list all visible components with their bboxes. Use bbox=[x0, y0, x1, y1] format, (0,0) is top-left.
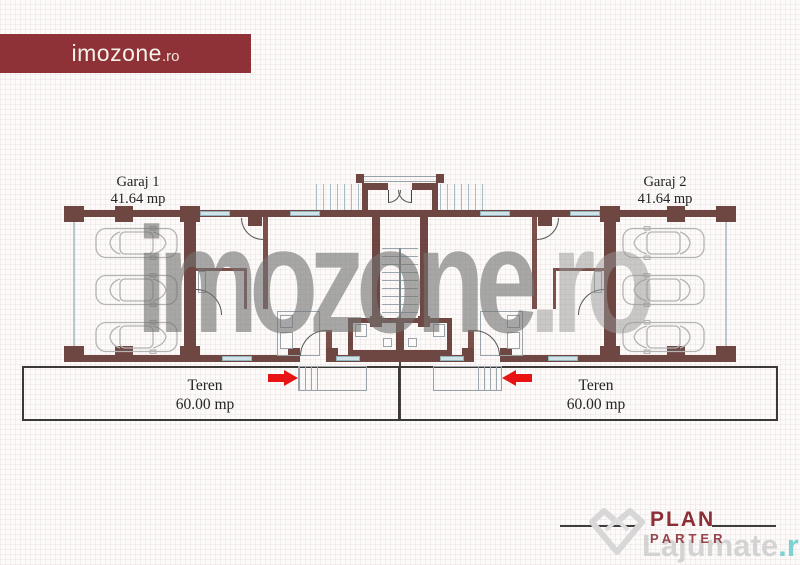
land-right-area: 60.00 mp bbox=[546, 396, 646, 415]
corridor-wall bbox=[420, 217, 428, 322]
window bbox=[570, 211, 600, 216]
car-icon bbox=[621, 320, 705, 354]
brand-tld: .ro bbox=[162, 42, 180, 65]
brand-name: imozone bbox=[72, 40, 162, 67]
door-swing-arc bbox=[196, 289, 222, 315]
window bbox=[480, 211, 510, 216]
door-swing-arc bbox=[241, 218, 263, 240]
sink-fixture bbox=[408, 338, 417, 347]
window bbox=[548, 356, 578, 361]
window bbox=[336, 356, 360, 361]
floorplan-listing-image: imozone.ro Garaj 1 41.64 mp Garaj 2 41.6… bbox=[0, 0, 800, 565]
stove-icon bbox=[507, 315, 520, 328]
porch-wall bbox=[362, 183, 388, 190]
sink-icon bbox=[280, 332, 293, 349]
interior-wall bbox=[263, 217, 268, 309]
wall-pillar bbox=[64, 206, 84, 222]
garage1-label: Garaj 1 41.64 mp bbox=[88, 174, 188, 209]
interior-wall bbox=[553, 268, 556, 309]
exterior-stairs-icon bbox=[440, 184, 484, 210]
car-icon bbox=[95, 226, 179, 260]
garage2-area: 41.64 mp bbox=[615, 191, 715, 208]
window bbox=[440, 356, 464, 361]
land-left-label: Teren 60.00 mp bbox=[155, 377, 255, 414]
land-left-name: Teren bbox=[155, 377, 255, 396]
stair-rail bbox=[399, 248, 401, 326]
wall-pillar bbox=[356, 174, 364, 183]
car-icon bbox=[621, 226, 705, 260]
plan-subtitle: PARTER bbox=[650, 531, 714, 546]
corridor-wall bbox=[372, 217, 380, 322]
footer-rule-right bbox=[712, 525, 776, 527]
door-leaf bbox=[411, 190, 412, 203]
wall-pillar bbox=[600, 346, 620, 362]
corner-watermark-tld: .ro bbox=[778, 528, 800, 563]
wall-segment bbox=[70, 210, 730, 217]
garage-door-line bbox=[725, 222, 727, 346]
entry-steps-icon bbox=[299, 366, 323, 391]
porch-roof-outline bbox=[360, 176, 440, 182]
garage-partition-wall bbox=[604, 210, 616, 362]
land-left-area: 60.00 mp bbox=[155, 396, 255, 415]
garage1-area: 41.64 mp bbox=[88, 191, 188, 208]
land-right-label: Teren 60.00 mp bbox=[546, 377, 646, 414]
toilet-fixture bbox=[433, 324, 445, 337]
exterior-stairs-icon bbox=[316, 184, 360, 210]
porch-wall bbox=[362, 190, 368, 211]
garage1-name: Garaj 1 bbox=[88, 174, 188, 191]
garage-door-line bbox=[73, 222, 75, 346]
stove-icon bbox=[280, 315, 293, 328]
garage2-name: Garaj 2 bbox=[615, 174, 715, 191]
land-right-name: Teren bbox=[546, 377, 646, 396]
window bbox=[290, 211, 320, 216]
door-swing-arc bbox=[578, 289, 604, 315]
garage-partition-wall bbox=[184, 210, 196, 362]
plan-title: PLAN bbox=[650, 508, 714, 532]
party-wall bbox=[396, 318, 404, 362]
sink-icon bbox=[507, 332, 520, 349]
entry-steps-icon bbox=[478, 366, 502, 391]
arrow-right-icon bbox=[268, 370, 298, 386]
car-icon bbox=[95, 320, 179, 354]
toilet-fixture bbox=[355, 324, 367, 337]
wall-pillar bbox=[716, 206, 736, 222]
porch-wall bbox=[432, 190, 438, 211]
arrow-left-icon bbox=[502, 370, 532, 386]
wall-pillar bbox=[436, 174, 444, 183]
brand-banner: imozone.ro bbox=[0, 34, 251, 73]
wall-pillar bbox=[180, 346, 200, 362]
sink-fixture bbox=[383, 338, 392, 347]
window bbox=[222, 356, 252, 361]
interior-wall bbox=[244, 268, 247, 309]
door-swing-arc bbox=[537, 218, 559, 240]
heart-icon bbox=[584, 506, 650, 558]
car-icon bbox=[95, 273, 179, 307]
porch-wall bbox=[412, 183, 438, 190]
wall-pillar bbox=[64, 346, 84, 362]
wall-pillar bbox=[716, 346, 736, 362]
car-icon bbox=[621, 273, 705, 307]
window bbox=[200, 211, 230, 216]
door-swing-arc bbox=[398, 190, 411, 203]
garage2-label: Garaj 2 41.64 mp bbox=[615, 174, 715, 209]
